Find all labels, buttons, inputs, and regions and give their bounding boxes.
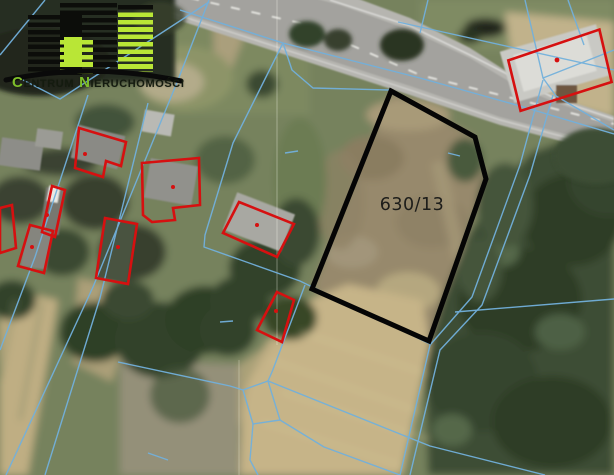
logo-word1-initial: C bbox=[12, 74, 23, 91]
logo: CENTRUMNIERUCHOMOŚCI bbox=[0, 0, 205, 100]
logo-word2-initial: N bbox=[79, 74, 90, 91]
boundary-tick bbox=[220, 321, 233, 322]
logo-word2-rest: IERUCHOMOŚCI bbox=[91, 78, 185, 90]
logo-word1-rest: ENTRUM bbox=[23, 78, 74, 90]
parcel-label: 630/13 bbox=[380, 195, 445, 215]
aerial-map-image: 630/13 CENTRUMNIERUCHOMOŚCI bbox=[0, 0, 614, 475]
logo-text: CENTRUMNIERUCHOMOŚCI bbox=[12, 74, 185, 91]
